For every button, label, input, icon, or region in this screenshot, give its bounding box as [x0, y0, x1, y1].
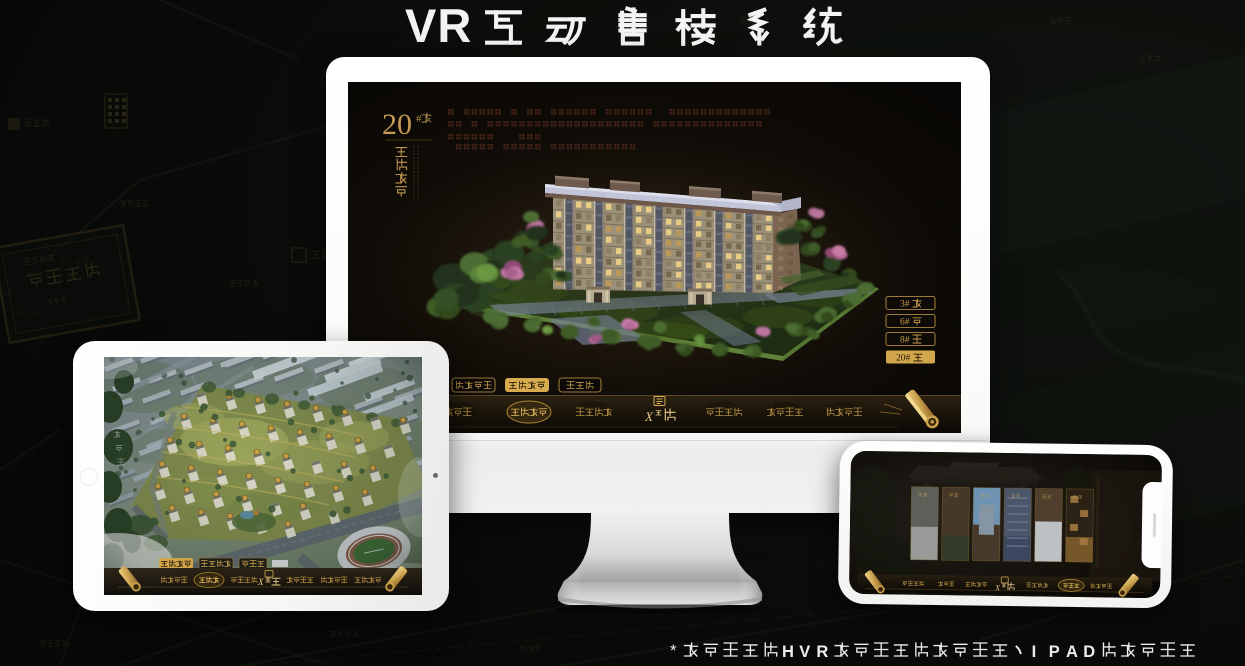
svg-text:VR: VR	[405, 0, 472, 52]
svg-text:I: I	[1032, 643, 1037, 661]
svg-text:X: X	[644, 409, 654, 424]
svg-text:A: A	[1066, 643, 1078, 661]
svg-text:8#: 8#	[900, 336, 910, 346]
svg-text:H: H	[782, 643, 794, 661]
svg-text:#: #	[416, 113, 422, 125]
svg-text:20: 20	[382, 108, 412, 141]
svg-text:P: P	[1049, 643, 1060, 661]
svg-text:3#: 3#	[900, 300, 910, 310]
svg-text:*: *	[670, 641, 677, 660]
svg-text:6#: 6#	[900, 318, 910, 328]
svg-text:R: R	[816, 643, 828, 661]
svg-text:X: X	[257, 577, 264, 587]
svg-text:V: V	[799, 643, 810, 661]
svg-text:20#: 20#	[896, 354, 911, 364]
svg-text:D: D	[1083, 643, 1095, 661]
